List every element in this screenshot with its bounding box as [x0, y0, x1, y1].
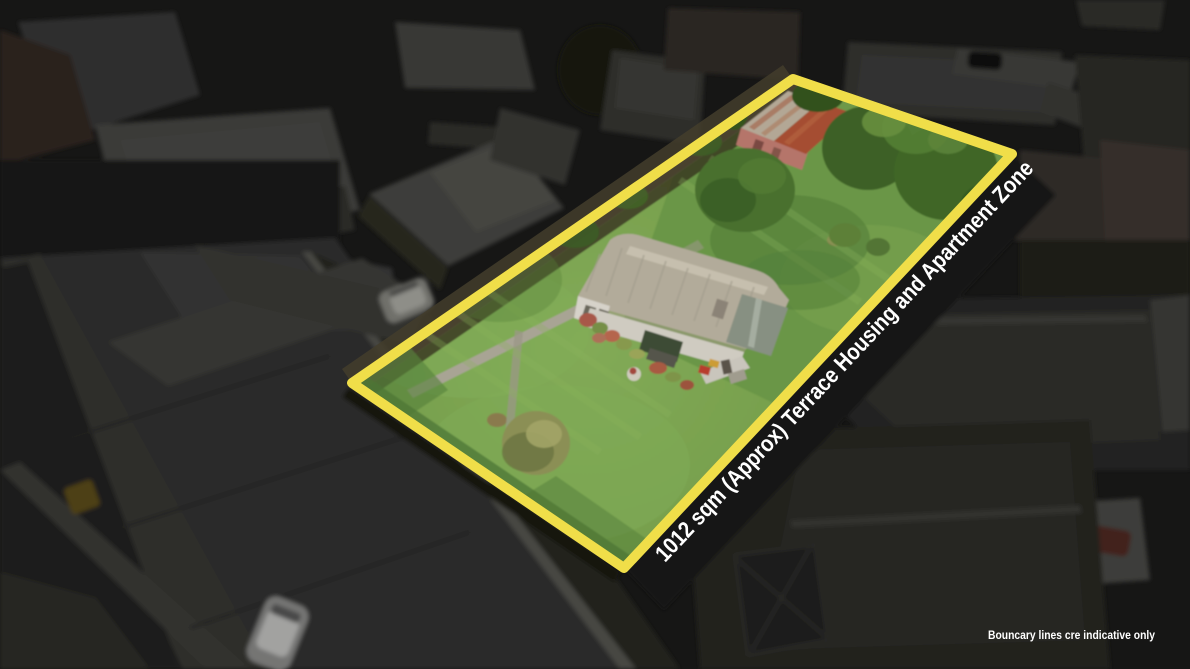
svg-text:Bouncary lines cre indicative: Bouncary lines cre indicative only	[988, 628, 1155, 642]
